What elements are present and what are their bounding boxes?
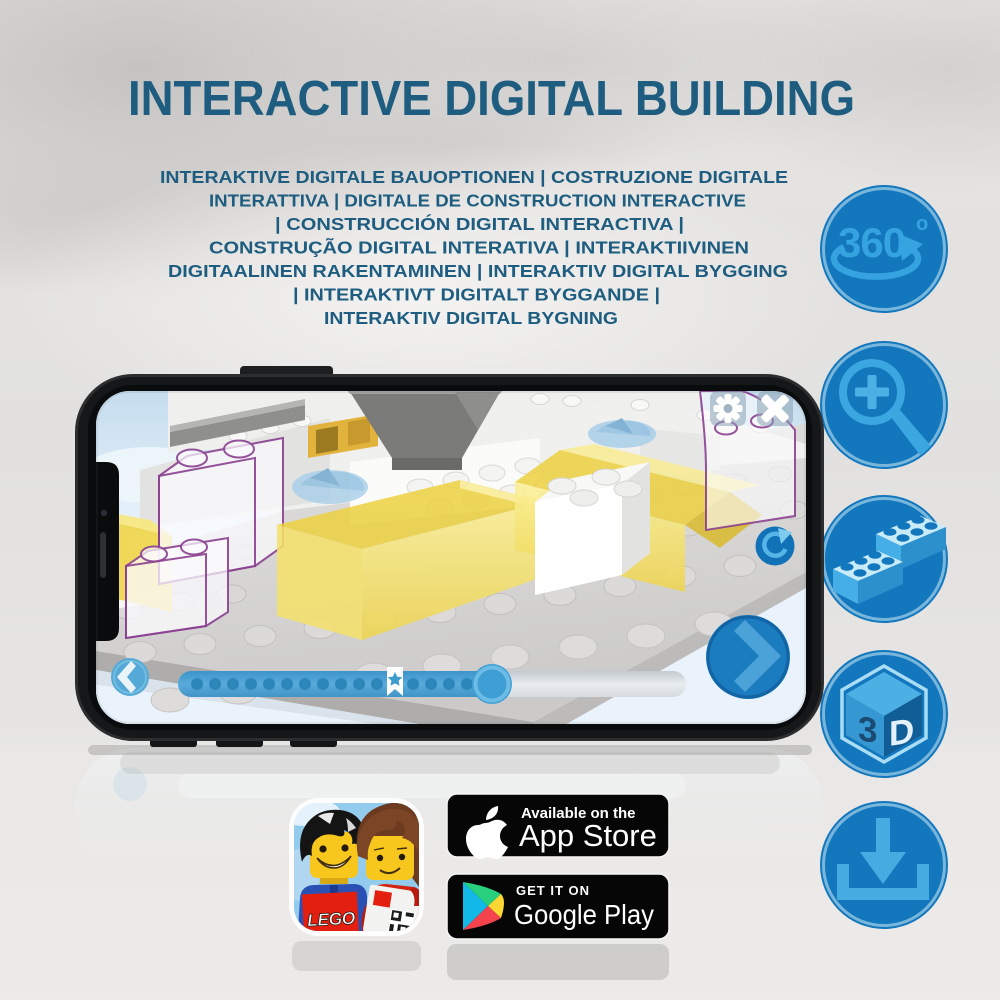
svg-text:Google Play: Google Play: [514, 899, 654, 930]
svg-text:D: D: [889, 711, 914, 754]
svg-text:o: o: [916, 213, 928, 235]
svg-text:| CONSTRUCCIÓN DIGITAL INTERAC: | CONSTRUCCIÓN DIGITAL INTERACTIVA |: [275, 213, 684, 234]
svg-text:360: 360: [838, 219, 905, 266]
svg-text:LEGO: LEGO: [307, 908, 356, 931]
svg-text:App Store: App Store: [519, 818, 657, 853]
svg-text:DIGITAALINEN RAKENTAMINEN | IN: DIGITAALINEN RAKENTAMINEN | INTERAKTIV D…: [168, 261, 788, 281]
svg-text:| INTERAKTIVT DIGITALT BYGGAND: | INTERAKTIVT DIGITALT BYGGANDE |: [293, 285, 660, 305]
svg-text:INTERACTIVE DIGITAL BUILDING: INTERACTIVE DIGITAL BUILDING: [128, 72, 855, 126]
svg-text:GET IT ON: GET IT ON: [516, 883, 590, 898]
svg-text:CONSTRUÇÃO DIGITAL INTERATIVA: CONSTRUÇÃO DIGITAL INTERATIVA | INTERAKT…: [209, 237, 749, 258]
svg-text:INTERAKTIV DIGITAL BYGNING: INTERAKTIV DIGITAL BYGNING: [324, 308, 618, 328]
svg-text:INTERATTIVA | DIGITALE DE CONS: INTERATTIVA | DIGITALE DE CONSTRUCTION I…: [209, 191, 746, 211]
svg-text:INTERAKTIVE DIGITALE BAUOPTION: INTERAKTIVE DIGITALE BAUOPTIONEN | COSTR…: [160, 167, 788, 187]
svg-text:3: 3: [858, 709, 877, 751]
